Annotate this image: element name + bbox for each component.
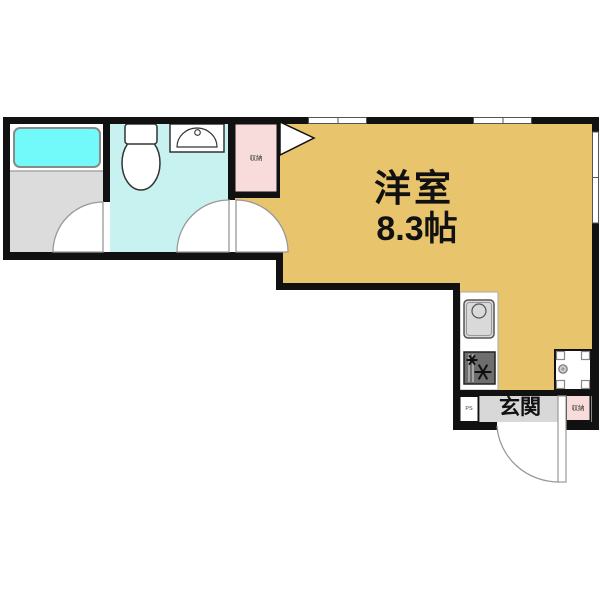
entrance-door-leaf [558, 396, 566, 482]
washing-machine-space-icon [555, 350, 591, 390]
wall-closet-bottom [228, 192, 280, 198]
entrance-label: 玄関 [499, 395, 541, 419]
entrance-closet-label: 収納 [572, 403, 585, 412]
wall-strip-bottom [3, 252, 283, 260]
entrance-door-arc [497, 426, 559, 482]
wall-bath-toilet [103, 124, 110, 202]
main-room-size-label: 8.3帖 [376, 210, 457, 248]
hall-closet-label: 収納 [250, 153, 263, 162]
bathtub-icon [14, 128, 100, 167]
wall-toilet-main [228, 124, 235, 202]
kitchen-sink-icon [464, 300, 494, 338]
main-room-label: 洋室 [374, 167, 454, 209]
floor-plan-canvas: 洋室 8.3帖 玄関 収納 収納 PS [0, 0, 600, 600]
floor-plan: 洋室 8.3帖 玄関 収納 収納 PS [0, 0, 600, 600]
washbasin-faucet-icon [195, 130, 201, 136]
wall-bottom-right [566, 422, 599, 430]
wall-kitchen-vertical [453, 283, 460, 430]
pipe-space-label: PS [465, 406, 473, 412]
wall-left [3, 117, 10, 260]
wall-bottom-left [453, 422, 497, 430]
wall-mid-horizontal [276, 283, 460, 290]
gas-stove-icon [464, 352, 495, 384]
main-room-floor [235, 124, 592, 390]
toilet-tank-icon [125, 124, 157, 144]
